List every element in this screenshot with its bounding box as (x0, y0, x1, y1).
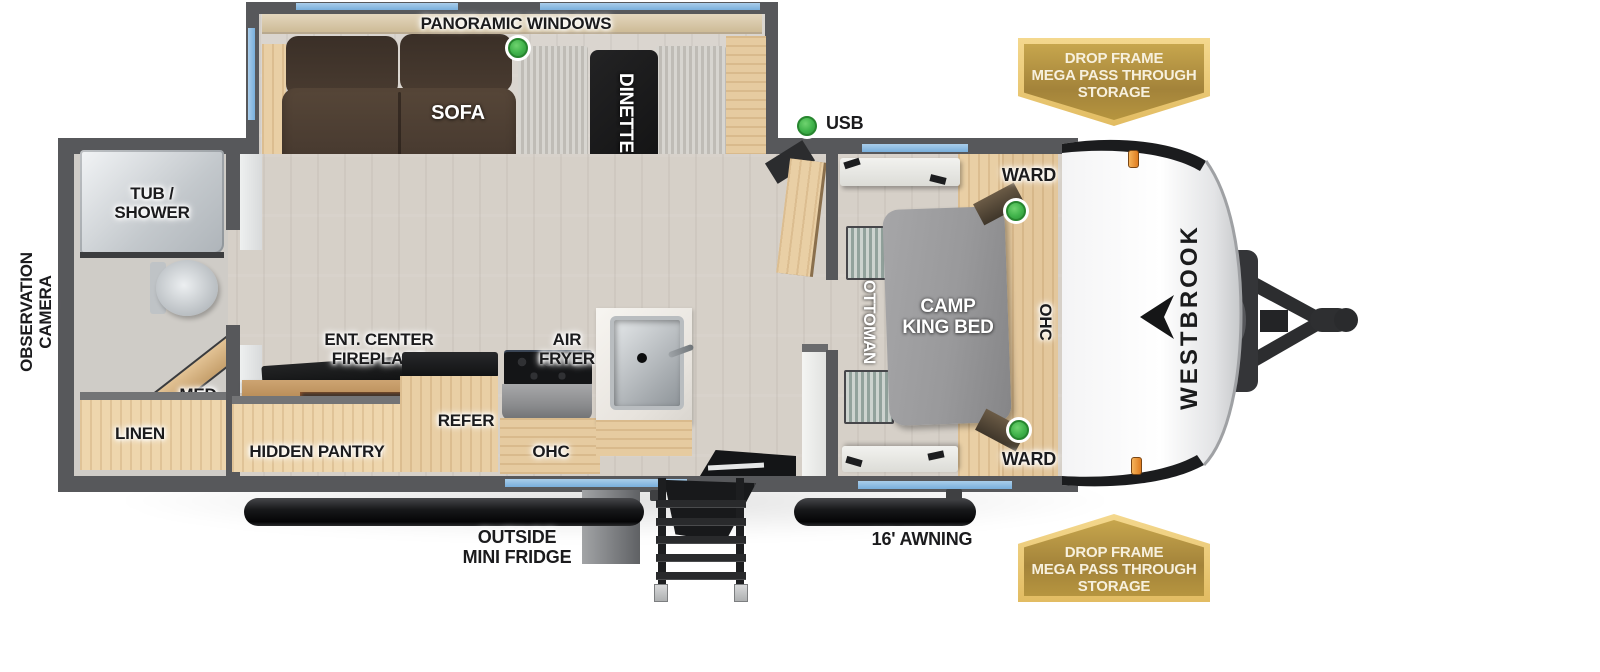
sink-base-cabinet (596, 420, 692, 456)
ladder-rung-2 (656, 518, 746, 525)
ward-label-bottom: WARD (989, 450, 1069, 470)
sink-drain (637, 353, 647, 363)
ohc-bedroom-label: OHC (1034, 292, 1054, 352)
ladder-rung-5 (656, 572, 746, 579)
refer-top (402, 352, 498, 378)
awning-roll-left (244, 498, 644, 526)
panoramic-windows-marker (508, 38, 528, 58)
ladder-foot-left (654, 584, 668, 602)
sofa-label: SOFA (418, 102, 498, 124)
bedroom-window-top (862, 144, 968, 152)
floorplan-canvas: SOFA DINETTE TUB / SHOWER MED LINEN ENT.… (0, 0, 1600, 672)
camp-king-bed-label: CAMP KING BED (878, 297, 1018, 339)
ladder-rung-1 (656, 500, 746, 507)
oven-front (502, 384, 592, 420)
slideout-window-left-top (296, 3, 458, 10)
brand-logo-icon (1140, 295, 1174, 339)
usb-marker (797, 116, 817, 136)
dinette-label: DINETTE (613, 58, 635, 168)
ladder-rung-3 (656, 536, 746, 543)
awning-bracket-right (946, 489, 962, 500)
toilet-bowl (156, 260, 218, 316)
cap-marker-light-top (1128, 150, 1139, 168)
brand-block: WESTBROOK (1136, 202, 1208, 432)
ottoman-cushion-bottom (844, 370, 894, 424)
bedroom-window-bottom (858, 481, 1012, 489)
ladder-rung-4 (656, 554, 746, 561)
bedroom-marker-top (1006, 201, 1026, 221)
sofa-back-cushion-left (286, 36, 398, 96)
kitchen-sink (610, 316, 684, 410)
sofa-back-cushion-right (400, 34, 512, 92)
ward-label-top: WARD (989, 166, 1069, 186)
air-fryer-label: AIR FRYER (527, 331, 607, 368)
hidden-pantry-label: HIDDEN PANTRY (231, 443, 403, 462)
cap-marker-light-bottom (1131, 457, 1142, 475)
entry-side-cabinet (802, 344, 828, 476)
hidden-pantry-cabinet (232, 404, 402, 472)
bedroom-partition-upper (826, 154, 838, 280)
refer-label: REFER (426, 412, 506, 431)
slideout-window-right-top (540, 3, 760, 10)
tub-shower-label: TUB / SHOWER (92, 185, 212, 222)
observation-camera-label: OBSERVATION CAMERA (18, 245, 62, 379)
bedroom-marker-bottom (1009, 420, 1029, 440)
awning-roll-right (794, 498, 976, 526)
awning-label: 16' AWNING (852, 530, 992, 550)
bath-partition-upper (226, 138, 240, 230)
storage-badge-bottom: DROP FRAME MEGA PASS THROUGH STORAGE (1018, 514, 1210, 602)
panoramic-windows-label: PANORAMIC WINDOWS (416, 15, 616, 34)
usb-label: USB (826, 114, 876, 134)
ottoman-label: OTTOMAN (856, 267, 878, 377)
storage-badge-bottom-text: DROP FRAME MEGA PASS THROUGH STORAGE (1018, 545, 1210, 596)
slideout-window-side (248, 28, 255, 120)
linen-label: LINEN (100, 425, 180, 444)
bath-wall-panel-upper (240, 154, 262, 250)
ladder-foot-right (734, 584, 748, 602)
ohc-kitchen-label: OHC (521, 443, 581, 462)
bedroom-partition-lower (826, 350, 838, 476)
tub-ledge (80, 252, 224, 258)
storage-badge-top-text: DROP FRAME MEGA PASS THROUGH STORAGE (1018, 51, 1210, 102)
brand-name: WESTBROOK (1176, 224, 1204, 410)
outside-mini-fridge-label: OUTSIDE MINI FRIDGE (437, 528, 597, 568)
storage-badge-top: DROP FRAME MEGA PASS THROUGH STORAGE (1018, 38, 1210, 126)
linen-cabinet-lip (80, 392, 228, 400)
hidden-pantry-lip (232, 396, 402, 404)
